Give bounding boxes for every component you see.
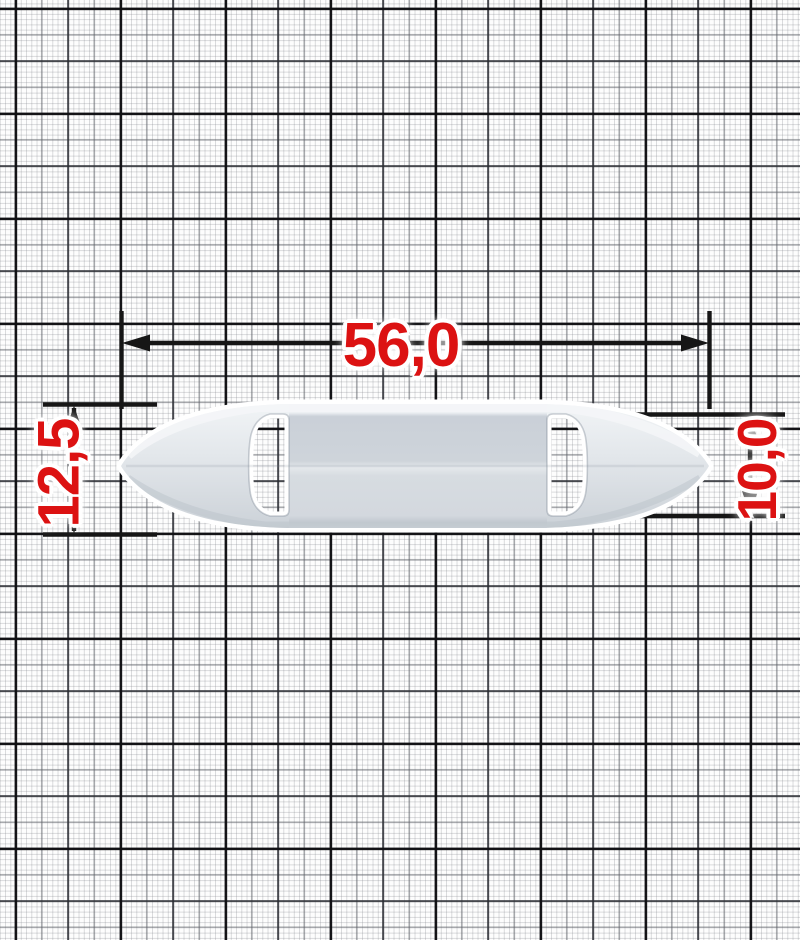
graph-paper: 56,0 12,5 10,0 <box>0 0 800 940</box>
dim-height-tip-label: 10,0 <box>725 418 789 521</box>
part-illustration <box>0 0 800 940</box>
dim-height-overall-label: 12,5 <box>26 419 93 528</box>
dim-width-label: 56,0 <box>343 310 460 381</box>
